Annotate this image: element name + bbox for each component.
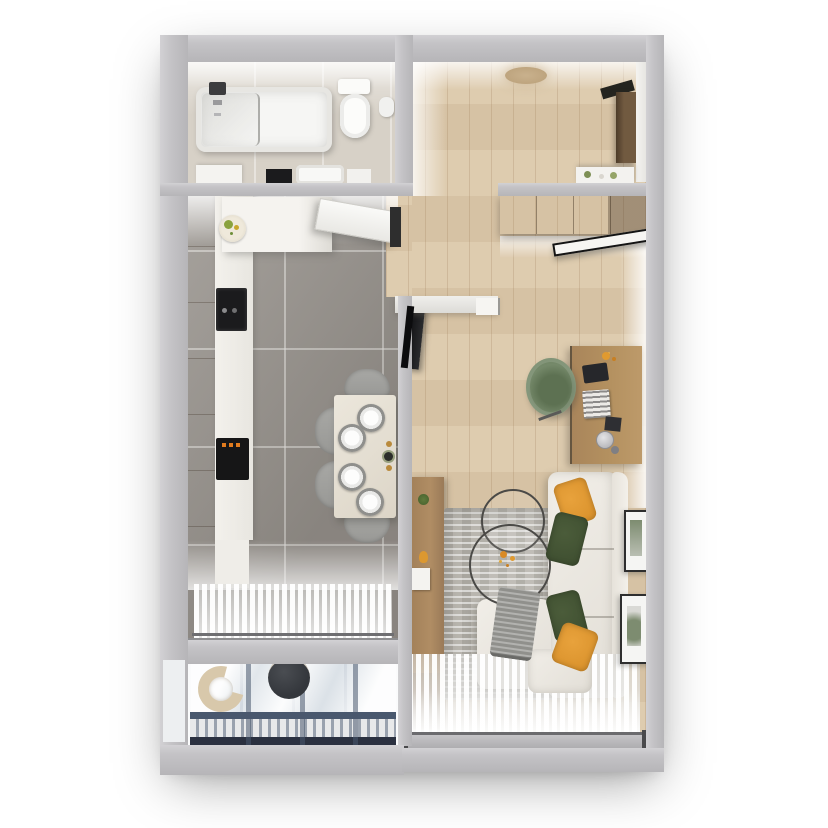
keyboard [582, 389, 611, 419]
left-wall-balcony-glass [163, 660, 185, 742]
kitchen-counter-lower [215, 540, 249, 588]
cooktop-knob-icon [222, 308, 227, 313]
desk-flowers-decor [602, 352, 610, 360]
hall-wall-face-glow [412, 60, 446, 196]
shower-fixture-icon [209, 82, 226, 95]
vanity-counter-left [196, 165, 242, 184]
framed-art-1-image [630, 520, 642, 556]
sideboard-orange-decor [419, 551, 428, 563]
fruit-decor [224, 220, 233, 229]
hall-ceiling-light [505, 67, 547, 84]
cooktop [216, 288, 247, 331]
console-plant-decor [584, 171, 591, 178]
table-candles-icon [386, 441, 392, 447]
desk-lamp-icon [596, 431, 614, 449]
shower-tray-glass [202, 93, 260, 146]
kitchen-cabinet-wood-row [188, 195, 215, 527]
fruit-plate [219, 215, 246, 242]
place-setting-2 [338, 424, 366, 452]
entry-door [616, 92, 636, 163]
balcony-mullion-3 [353, 662, 358, 746]
sideboard-plant-decor [418, 494, 429, 505]
toilet-paper-holder-icon [379, 97, 394, 117]
balcony-mullion-1 [246, 662, 251, 746]
place-setting-4 [356, 488, 384, 516]
living-curtain-glow [408, 690, 640, 732]
dining-chair-top [344, 369, 390, 398]
wall-living-bottom [402, 748, 664, 772]
laptop [582, 362, 609, 383]
oven [216, 438, 249, 480]
desk-notebook [604, 416, 621, 432]
wall-column-cap [476, 298, 500, 315]
oven-display-icon [222, 443, 226, 447]
vanity-dark-appliance [266, 169, 292, 184]
toilet-tank [338, 79, 370, 94]
table-vase-plant [384, 452, 393, 461]
desk-chair-green [526, 358, 576, 416]
kitchen-curtain-rod [192, 633, 394, 636]
vanity-sink [296, 165, 344, 184]
wardrobe-dark-section [608, 194, 646, 234]
kitchen-door-frame [390, 207, 401, 247]
balcony-frame-line [190, 712, 396, 719]
wall-kitchen-window-sill [188, 638, 398, 664]
balcony-slat-row [190, 719, 396, 737]
wall-balcony-bottom [160, 745, 404, 775]
framed-art-2-image [627, 606, 641, 646]
sideboard-white-book [412, 568, 430, 590]
floorplan-canvas [0, 0, 828, 828]
place-setting-3 [338, 463, 366, 491]
coffee-table-flowers [500, 551, 507, 558]
kitchen-sheer-curtain [194, 584, 392, 638]
wall-outer-right [646, 35, 664, 772]
vanity-counter-right [347, 169, 371, 184]
wall-bathroom-bottom [160, 183, 413, 196]
wall-bathroom-hall [395, 35, 413, 195]
toilet-bowl [340, 94, 370, 138]
wall-hall-living [498, 183, 646, 196]
